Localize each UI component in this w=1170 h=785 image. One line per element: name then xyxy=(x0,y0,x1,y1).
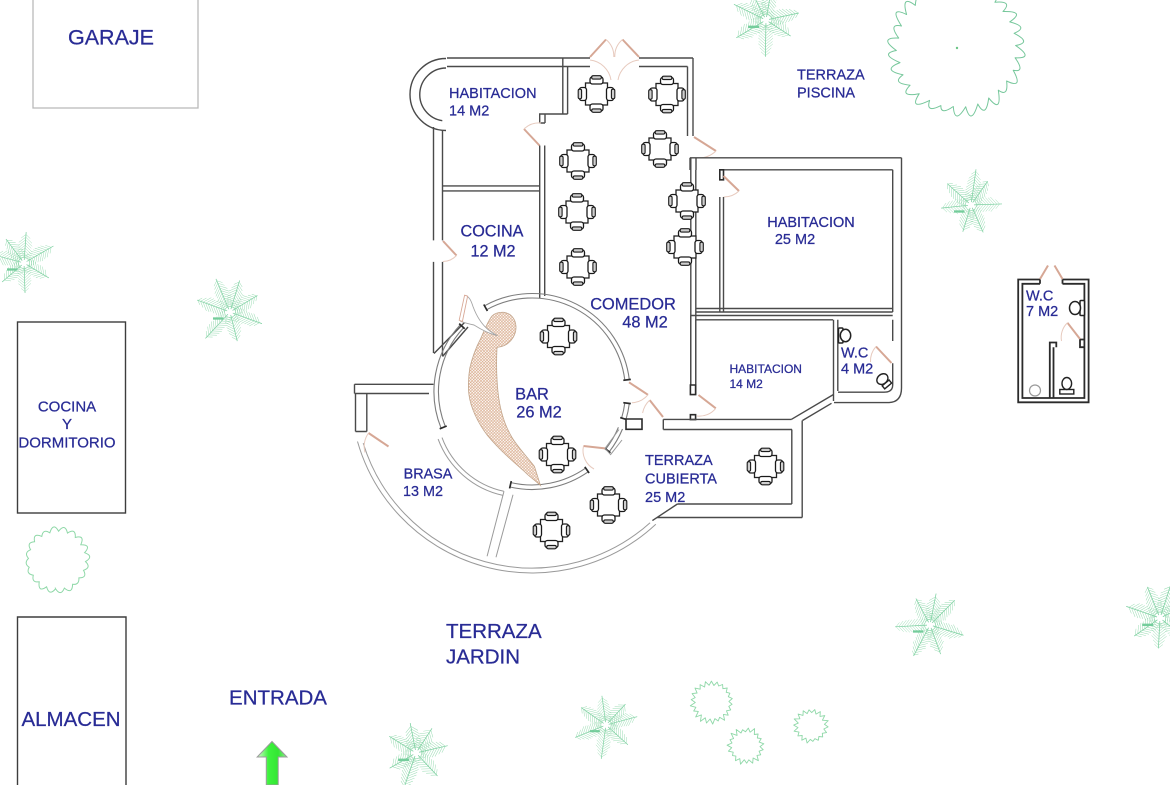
svg-text:13 M2: 13 M2 xyxy=(403,484,443,500)
svg-text:TERRAZA: TERRAZA xyxy=(645,453,713,469)
svg-text:BRASA: BRASA xyxy=(404,467,453,483)
svg-text:26 M2: 26 M2 xyxy=(516,404,562,422)
svg-text:HABITACION: HABITACION xyxy=(449,86,537,102)
svg-text:DORMITORIO: DORMITORIO xyxy=(18,435,115,452)
svg-text:CUBIERTA: CUBIERTA xyxy=(645,472,717,488)
svg-text:14 M2: 14 M2 xyxy=(449,104,489,120)
svg-text:BAR: BAR xyxy=(515,386,549,404)
svg-text:W.C: W.C xyxy=(841,346,868,362)
svg-text:COMEDOR: COMEDOR xyxy=(590,296,676,314)
svg-text:HABITACION: HABITACION xyxy=(730,362,802,376)
svg-text:GARAJE: GARAJE xyxy=(68,26,154,50)
svg-text:12 M2: 12 M2 xyxy=(471,242,516,260)
svg-text:PISCINA: PISCINA xyxy=(797,86,855,102)
svg-text:25 M2: 25 M2 xyxy=(775,232,815,248)
svg-text:COCINA: COCINA xyxy=(461,222,524,240)
svg-text:ENTRADA: ENTRADA xyxy=(229,687,327,710)
svg-text:4 M2: 4 M2 xyxy=(841,362,873,378)
svg-text:HABITACION: HABITACION xyxy=(767,215,855,231)
svg-text:Y: Y xyxy=(62,416,72,433)
svg-text:TERRAZA: TERRAZA xyxy=(446,620,542,643)
svg-text:48 M2: 48 M2 xyxy=(622,313,668,331)
svg-text:25 M2: 25 M2 xyxy=(645,490,685,506)
svg-text:JARDIN: JARDIN xyxy=(446,646,520,669)
svg-text:7 M2: 7 M2 xyxy=(1026,304,1058,320)
svg-text:14 M2: 14 M2 xyxy=(730,377,764,391)
svg-text:COCINA: COCINA xyxy=(38,399,96,416)
svg-text:TERRAZA: TERRAZA xyxy=(797,68,865,84)
svg-text:ALMACEN: ALMACEN xyxy=(21,708,120,731)
svg-text:W.C: W.C xyxy=(1026,289,1053,305)
